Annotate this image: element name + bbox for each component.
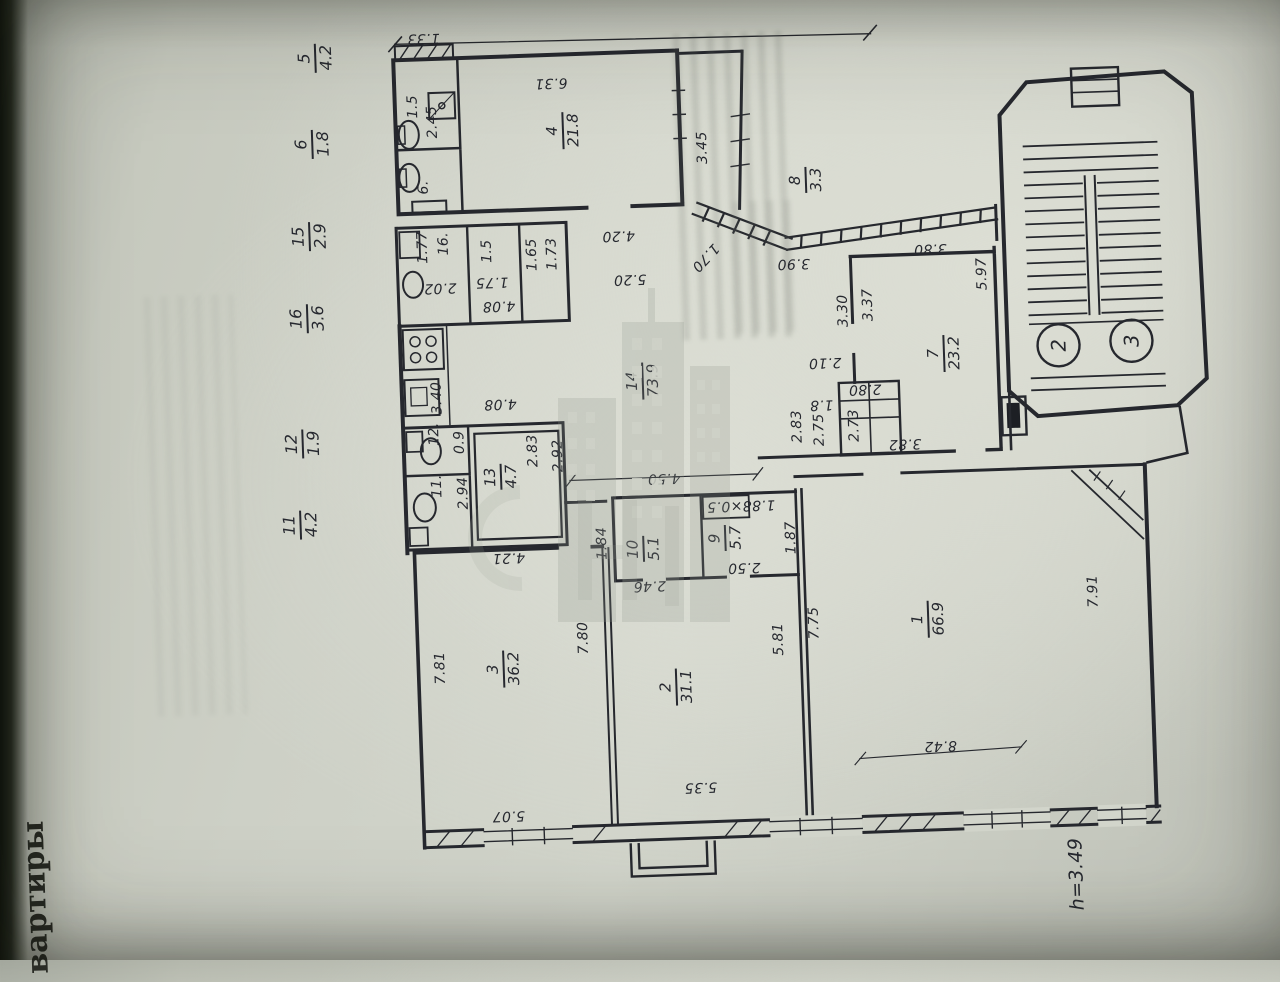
stair-circle-2: 2 [1046,339,1070,353]
dim-label: 2.92 [551,439,566,472]
dim-label: 5.81 [771,623,786,656]
dim-label: 5.97 [974,257,989,290]
dim-label: 2.83 [790,410,805,443]
floor-plan-sheet: 2 3 54.2 61.8 152.9 163.6 121.9 114.2 42… [0,0,1280,982]
stair-circle-3: 3 [1119,334,1143,348]
dim-label: 3.45 [695,131,710,164]
dim-label: 5.07 [492,808,525,823]
margin-fraction-12: 121.9 [283,430,321,457]
dim-label: 2.46 [633,578,666,593]
room-number-11: 11. [430,474,445,498]
dim-label: 2.02 [424,280,457,295]
dim-label: 1.87 [784,521,799,554]
room-label-9: 95.7 [707,526,743,551]
dim-label: 2.80 [848,382,881,397]
dim-label: 3.80 [913,241,946,256]
room-label-1: 166.9 [910,602,947,637]
dim-label: 4.50 [647,471,680,486]
dim-label: 1.5 [480,239,495,263]
room-number-6: 6. [416,180,430,195]
dim-label: 7.91 [1086,575,1101,608]
margin-fraction-5: 54.2 [296,45,334,72]
dim-label: 4.21 [492,550,525,565]
margin-fraction-15: 152.9 [290,223,328,250]
room-label-10: 105.1 [625,536,661,561]
bottom-wall-band [424,803,1161,884]
dim-label: 1.75 [475,274,508,289]
dim-label: 2.45 [425,105,440,138]
room-number-16: 16. [436,232,451,256]
dim-label: 4.08 [484,396,517,411]
photo-shadow-edge [0,0,28,960]
dim-label: 7.80 [576,621,591,654]
margin-fraction-6: 61.8 [293,131,331,158]
dim-label: 1.84 [595,527,610,560]
dim-label: 2.75 [812,413,827,446]
dim-label: 4.20 [602,228,635,243]
room-label-7: 723.2 [925,336,962,371]
dim-label: 2.94 [456,477,471,510]
room-label-3: 336.2 [485,652,522,687]
room-number-12: 12. [427,422,442,446]
dim-label: 8.42 [924,738,957,753]
room-label-2: 231.1 [658,670,695,705]
room-label-14: 1473.9 [624,364,661,399]
dim-label: 3.82 [888,436,921,451]
dim-label: 5.20 [613,272,646,287]
dim-label: 2.10 [808,355,841,370]
dim-label: 3.37 [860,288,875,321]
dim-label: 3.90 [777,256,810,271]
dim-label: 1.88×0.5 [707,497,776,513]
dim-label: 4.08 [482,298,515,313]
bleed-through-text [143,294,248,717]
dim-label: 1.65 [525,238,540,271]
dim-label: 1.33 [407,31,440,46]
dim-label: 7.81 [433,651,448,684]
stairwell [998,64,1210,467]
dim-label: 3.30 [836,294,851,327]
dim-label: 1.5 [405,95,420,119]
margin-fraction-11: 114.2 [281,512,319,539]
dim-label: 2.73 [847,409,862,442]
dim-label: 6.31 [534,75,567,90]
dim-label: 1.8 [810,397,834,412]
margin-fraction-16: 163.6 [288,305,326,332]
room-label-8: 83.3 [787,167,823,192]
dim-label: 2.83 [525,434,540,467]
room-label-4: 421.8 [544,113,581,148]
dim-label: 3.40 [429,381,444,414]
dim-label: 2.50 [727,560,760,575]
dim-label: 1.73 [544,237,559,270]
room-label-13: 134.7 [483,464,519,489]
ceiling-height-note: h=3.49 [1066,837,1088,910]
dim-label: 1.77 [415,231,430,264]
dim-label: 7.75 [807,606,822,639]
dim-label: 0.9 [452,430,467,454]
dim-label: 5.35 [684,779,717,794]
